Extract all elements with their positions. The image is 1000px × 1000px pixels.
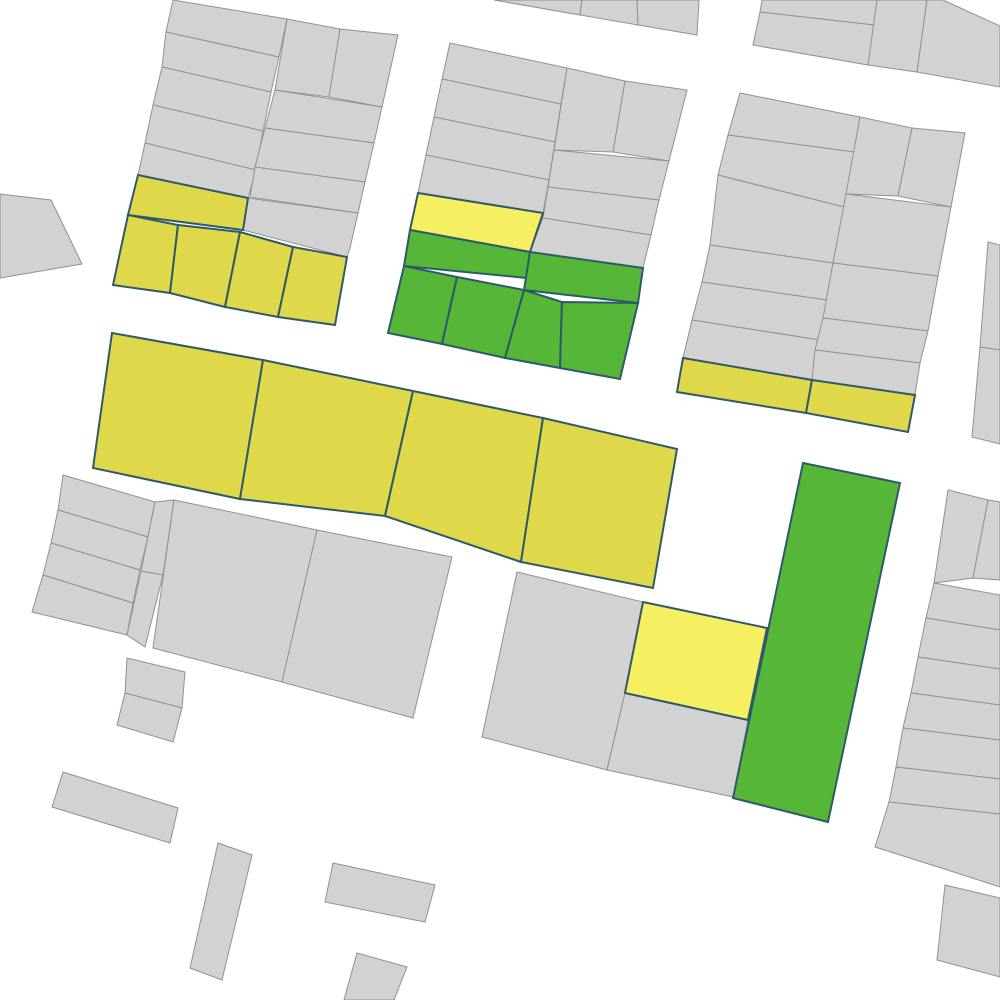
parcel-se-row-7[interactable] bbox=[875, 802, 1000, 887]
parcel-east-sliver-2[interactable] bbox=[972, 347, 1000, 444]
parcel-nw-tall-a[interactable] bbox=[275, 19, 340, 97]
parcel-se-corner[interactable] bbox=[937, 885, 1000, 977]
parcel-ne-row-r1[interactable] bbox=[833, 194, 951, 276]
parcel-corner-ne-4[interactable] bbox=[917, 0, 1000, 87]
parcel-bldg-2[interactable] bbox=[190, 843, 252, 980]
parcel-top-frag-1[interactable] bbox=[494, 0, 582, 15]
parcel-east-sliver-1[interactable] bbox=[980, 242, 1000, 350]
parcel-layer bbox=[0, 0, 1000, 1000]
parcel-nm-green-4[interactable] bbox=[560, 302, 638, 379]
parcel-top-frag-3[interactable] bbox=[637, 0, 699, 35]
parcel-mid-yellow-1[interactable] bbox=[93, 333, 263, 499]
parcel-nm-tall-a[interactable] bbox=[554, 68, 625, 152]
parcel-nm-tall-b[interactable] bbox=[613, 81, 687, 161]
parcel-mid-yellow-4[interactable] bbox=[521, 418, 677, 588]
parcel-nw-yellow-1[interactable] bbox=[113, 215, 178, 293]
parcel-top-frag-2[interactable] bbox=[580, 0, 638, 25]
parcel-bldg-3[interactable] bbox=[325, 863, 435, 922]
parcel-bldg-1[interactable] bbox=[52, 772, 178, 843]
map-viewport bbox=[0, 0, 1000, 1000]
parcel-bldg-4[interactable] bbox=[344, 953, 407, 1000]
parcel-mid-yellow-3[interactable] bbox=[385, 391, 543, 562]
parcel-west-edge[interactable] bbox=[0, 194, 82, 278]
parcel-mid-yellow-2[interactable] bbox=[240, 360, 413, 516]
parcel-nw-tall-b[interactable] bbox=[329, 29, 398, 107]
parcel-map-canvas[interactable] bbox=[0, 0, 1000, 1000]
